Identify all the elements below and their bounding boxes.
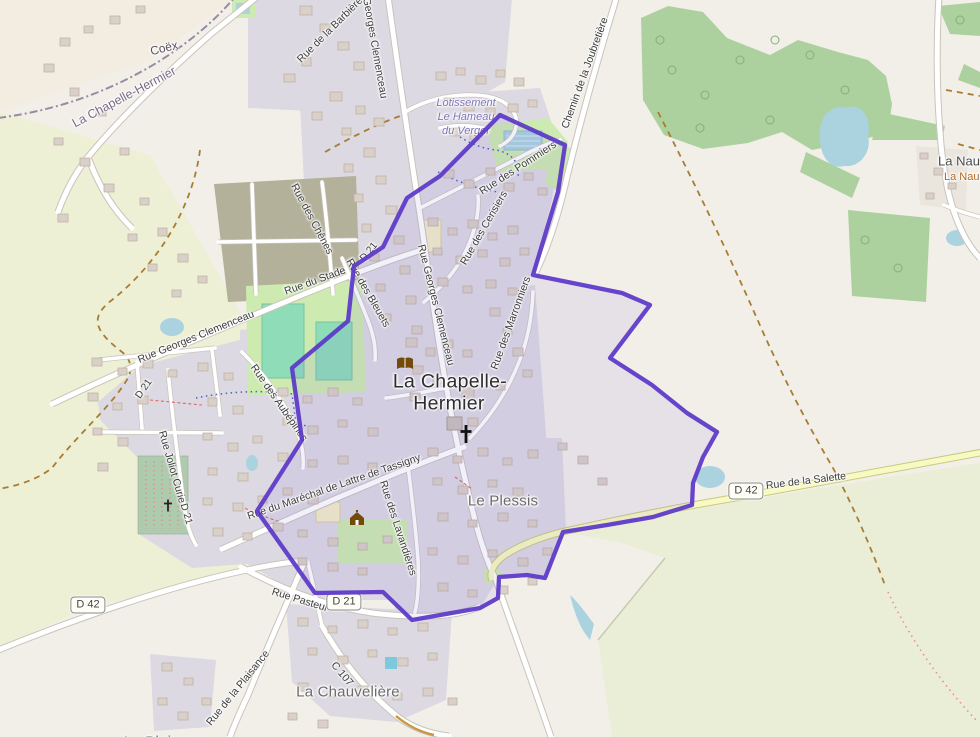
road-label-joubretiere: Chemin de la Joubretière [559, 16, 610, 130]
place-label-le-plessis: Le Plessis [468, 493, 538, 510]
town-label-line1: La Chapelle- [393, 371, 507, 394]
road-label-plaisance: Rue de la Plaisance [204, 648, 272, 728]
boundary-label-la-chapelle-hermier: La Chapelle-Hermier [70, 64, 178, 131]
road-label-clemenceau-west: Rue Georges Clemenceau [136, 308, 256, 366]
road-label-pasteur: Rue Pasteur [270, 586, 329, 615]
road-label-chenes: Rue des Chênes [288, 182, 335, 257]
road-label-cerisiers: Rue des Cerisiers [458, 189, 510, 267]
road-ref-d21-joliot: D 21 [178, 502, 194, 525]
road-label-joliot-curie: Rue Joliot Curie [156, 429, 188, 504]
road-label-clemenceau-mid: Rue Georges Clemenceau [415, 243, 457, 367]
map-canvas[interactable]: Coëx La Chapelle-Hermier Rue de la Barbi… [0, 0, 980, 737]
place-label-la-plaisance: La Plaisance [124, 734, 212, 737]
road-label-marronniers: Rue des Marronniers [489, 275, 534, 371]
road-ref-d21-west: D 21 [133, 377, 154, 401]
road-label-clemenceau-top: Georges Clemenceau [360, 0, 390, 99]
road-label-pommiers: Rue des Pommiers [477, 139, 558, 198]
route-badge-d42-east: D 42 [728, 483, 763, 500]
place-label-coex: Coëx [149, 38, 180, 58]
route-badge-d42-west: D 42 [70, 597, 105, 614]
place-label-la-nauliere: La Naulière [938, 154, 980, 169]
town-label-line2: Hermier [413, 393, 484, 416]
road-label-salette: Rue de la Salette [765, 470, 846, 492]
route-badge-d21-south: D 21 [326, 594, 361, 611]
place-label-lotissement-2: Le Hameau [438, 111, 495, 123]
road-label-barbiere: Rue de la Barbière [295, 0, 365, 65]
farm-label-la-nauliere: La Naulière [944, 171, 980, 183]
road-label-stade: Rue du Stade [283, 264, 347, 297]
road-label-lavandieres: Rue des Lavandières [377, 479, 419, 577]
place-label-lotissement-1: Lotissement [436, 97, 495, 109]
